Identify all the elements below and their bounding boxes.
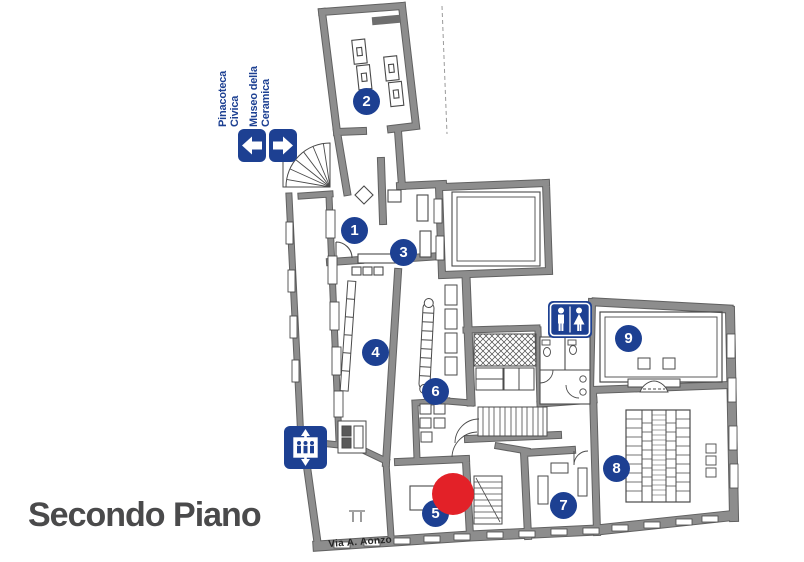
room-badge-7: 7 [550,492,577,519]
room-8-shelving [626,410,716,502]
room-6-side-cases [445,285,457,375]
floor-plan-drawing [0,0,804,562]
pinacoteca-direction-sign [238,129,266,162]
pinacoteca-civica-label: Pinacoteca Civica [217,71,241,127]
arrow-right-icon [269,129,297,162]
lower-staircase [474,476,502,524]
floor-plan-page: Pinacoteca Civica Museo della Ceramica [0,0,804,562]
room-badge-3: 3 [390,239,417,266]
museo-direction-sign [269,129,297,162]
elevator-passengers [297,441,314,453]
elevator-sign [284,426,327,474]
label-line: Ceramica [260,66,272,127]
room-9-fixtures [628,358,680,392]
hatched-shaft [474,334,536,366]
room-2-window-mark [372,15,401,25]
wc-rooms [540,337,590,404]
service-room-fixtures [420,404,445,442]
exhibit-diamond [355,186,373,204]
label-line: Civica [229,71,241,127]
room-4-display-case [340,281,356,391]
room-badge-9: 9 [615,325,642,352]
restroom-icon [548,301,592,338]
room-badge-1: 1 [341,217,368,244]
arrow-left-icon [238,129,266,162]
central-staircase [478,407,547,436]
room-badge-4: 4 [362,339,389,366]
stair-landing [476,368,534,390]
museo-ceramica-label: Museo della Ceramica [248,66,272,127]
label-line: Museo della [248,66,260,127]
you-are-here-marker [432,473,474,515]
label-line: Pinacoteca [217,71,229,127]
property-dashed-line [442,6,447,134]
room-badge-6: 6 [422,378,449,405]
elevator-icon [284,426,327,469]
room-badge-2: 2 [353,88,380,115]
page-title: Secondo Piano [28,496,261,535]
elevator-shaft [338,421,366,453]
room-badge-8: 8 [603,455,630,482]
restroom-sign [548,301,592,343]
gallery-room-inner-border [452,192,540,266]
